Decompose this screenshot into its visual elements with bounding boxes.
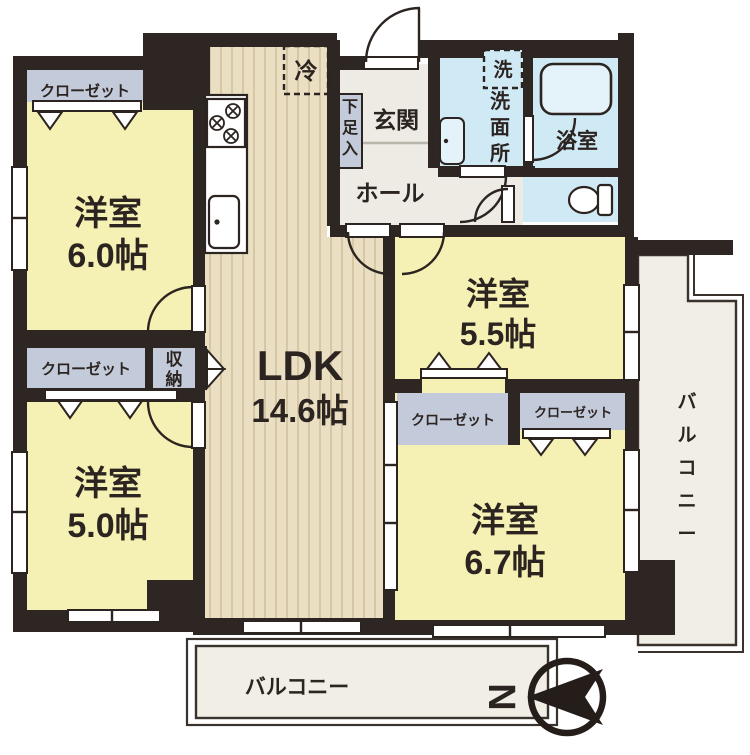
wall-segment — [428, 58, 440, 168]
ldk-size: 14.6帖 — [251, 392, 348, 429]
closet-slider — [523, 429, 610, 438]
toilet-tank-icon — [598, 185, 612, 215]
bedroom-se-name: 洋室 — [471, 501, 539, 540]
bedroom-nw-size: 6.0帖 — [67, 237, 148, 275]
wall-segment — [390, 379, 422, 393]
entrance-threshold — [364, 57, 418, 69]
closet-nw-label: クローゼット — [40, 82, 130, 100]
closet-c1-label: クローゼット — [411, 412, 495, 428]
washroom-label: 洗面所 — [490, 90, 510, 165]
shoe-cabinet-label: 下足入 — [342, 99, 359, 158]
wall-segment — [13, 330, 205, 348]
wall-segment — [193, 110, 205, 286]
bedroom-nw-name: 洋室 — [74, 194, 142, 233]
entrance-label: 玄関 — [373, 107, 419, 133]
floor-plan-svg: クローゼット 洋室 6.0帖 クローゼット 収納 洋室 5.0帖 LDK 14.… — [0, 0, 750, 750]
sliding-door — [384, 402, 397, 590]
bedroom-ne-name: 洋室 — [466, 276, 530, 312]
door-leaf — [400, 224, 444, 237]
toilet-bowl-icon — [569, 187, 599, 213]
wall-segment — [383, 237, 395, 402]
entrance-door-arc — [366, 8, 420, 62]
door-leaf — [192, 286, 205, 332]
balcony-south-label: バルコニー — [245, 676, 350, 699]
closet-slider — [45, 390, 177, 400]
wall-segment — [632, 240, 733, 255]
compass-north-label: N — [480, 683, 522, 710]
door-leaf — [502, 186, 514, 222]
closet-w-label: クローゼット — [41, 360, 131, 378]
door-leaf — [346, 224, 390, 237]
door-leaf — [192, 402, 205, 448]
door-leaf — [460, 166, 505, 177]
door-leaf — [524, 116, 533, 162]
washbasin-icon — [440, 118, 464, 164]
closet-slider — [33, 101, 141, 111]
sink-faucet-icon — [214, 219, 219, 224]
hall-label: ホール — [356, 180, 425, 206]
storage-label: 収納 — [166, 350, 184, 389]
bathroom-label: 浴室 — [556, 129, 598, 153]
bedroom-sw-size: 5.0帖 — [67, 507, 148, 545]
wall-segment — [508, 393, 520, 445]
window — [68, 610, 160, 622]
wall-segment — [523, 58, 533, 117]
ldk-name: LDK — [257, 342, 343, 389]
wall-segment — [505, 379, 630, 393]
kitchen-sink — [209, 196, 239, 248]
wall-segment — [523, 168, 618, 177]
wall-segment — [145, 346, 153, 390]
refrigerator-label: 冷 — [295, 58, 318, 84]
window — [433, 625, 605, 637]
wall-segment — [13, 56, 145, 70]
wall-segment — [618, 33, 634, 237]
bedroom-sw-floor — [27, 398, 193, 610]
closet-c2-label: クローゼット — [534, 405, 612, 420]
wall-segment — [438, 166, 462, 177]
bedroom-se-size: 6.7帖 — [464, 544, 545, 582]
bedroom-ne-size: 5.5帖 — [460, 316, 537, 352]
wall-segment — [330, 56, 366, 70]
washbasin-faucet-icon — [444, 139, 448, 143]
wall-segment — [143, 33, 210, 110]
bathtub-icon — [541, 64, 611, 114]
floor-plan: クローゼット 洋室 6.0帖 クローゼット 収納 洋室 5.0帖 LDK 14.… — [0, 0, 750, 750]
closet-slider — [421, 369, 507, 378]
wall-segment — [418, 40, 632, 58]
wall-segment — [195, 346, 207, 390]
bedroom-sw-name: 洋室 — [74, 464, 142, 503]
washer-label: 洗 — [493, 58, 512, 81]
